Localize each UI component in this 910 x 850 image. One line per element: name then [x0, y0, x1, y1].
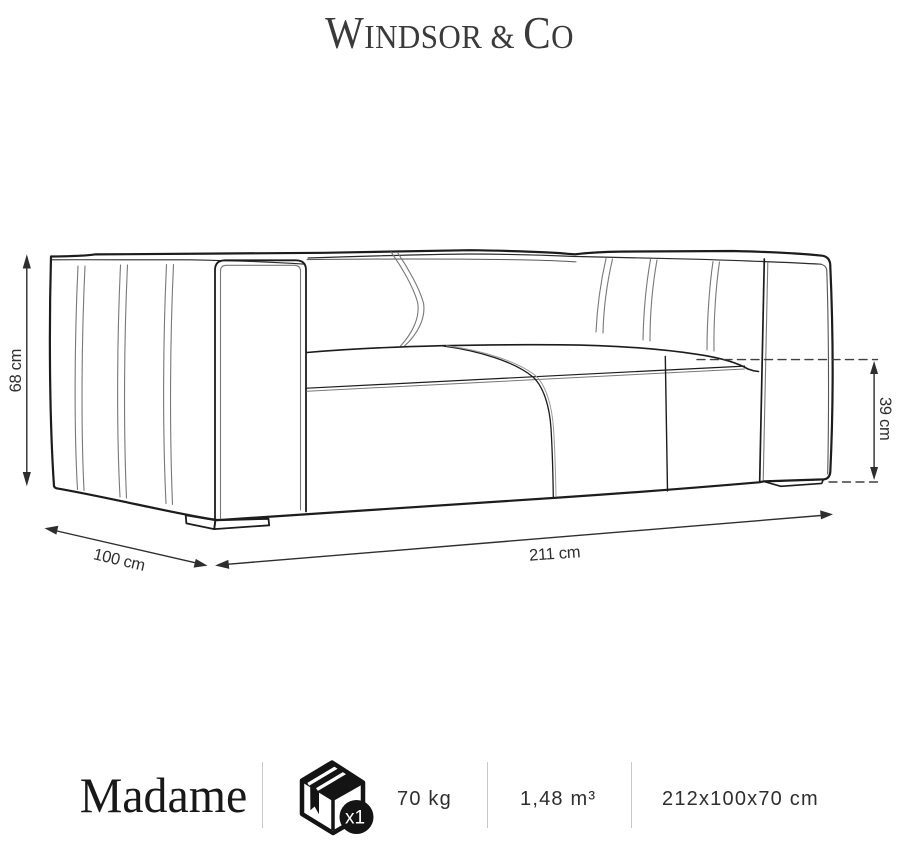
- svg-text:68 cm: 68 cm: [7, 349, 25, 392]
- svg-text:211 cm: 211 cm: [529, 543, 581, 565]
- svg-text:39 cm: 39 cm: [876, 397, 894, 440]
- svg-text:x1: x1: [345, 807, 365, 828]
